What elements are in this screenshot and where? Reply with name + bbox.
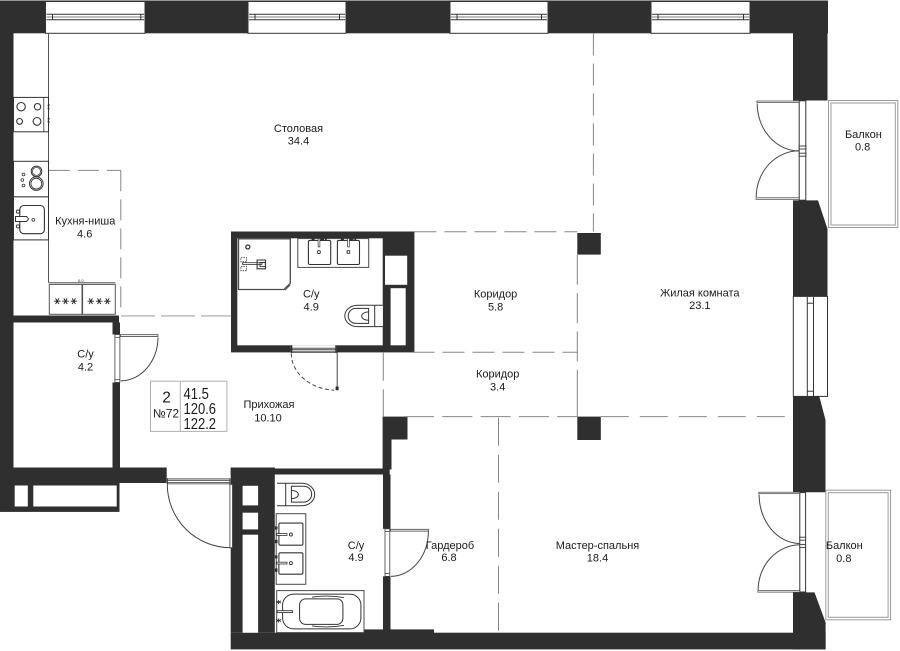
svg-text:Коридор: Коридор [476,369,519,381]
svg-text:Прихожая: Прихожая [244,399,295,411]
svg-text:С/у: С/у [303,289,320,301]
svg-text:6.8: 6.8 [441,552,456,564]
svg-text:34.4: 34.4 [288,136,309,148]
svg-text:122.2: 122.2 [184,416,217,433]
svg-text:С/у: С/у [77,349,94,361]
svg-text:Коридор: Коридор [474,289,517,301]
svg-text:4.9: 4.9 [348,552,363,564]
svg-text:5.8: 5.8 [488,301,503,313]
svg-text:Мастер-спальня: Мастер-спальня [556,540,640,552]
svg-text:Балкон: Балкон [845,129,882,141]
svg-text:10.10: 10.10 [254,412,282,424]
svg-text:18.4: 18.4 [587,552,608,564]
svg-text:№72: №72 [153,406,180,420]
svg-text:С/у: С/у [348,540,365,552]
svg-text:6.0: 6.0 [47,118,52,124]
svg-text:Балкон: Балкон [826,540,863,552]
svg-text:4.2: 4.2 [78,362,93,374]
svg-text:6.0: 6.0 [47,104,52,110]
svg-text:3.4: 3.4 [490,381,505,393]
svg-text:4.9: 4.9 [304,301,319,313]
svg-text:Кухня-ниша: Кухня-ниша [55,216,116,228]
svg-text:0.8: 0.8 [836,553,851,565]
svg-text:4.6: 4.6 [77,229,92,241]
svg-text:0.0: 0.0 [78,278,84,283]
svg-text:Столовая: Столовая [274,123,323,135]
svg-text:Жилая комната: Жилая комната [660,287,740,299]
svg-text:0.8: 0.8 [855,142,870,154]
svg-text:23.1: 23.1 [689,300,710,312]
svg-text:2: 2 [162,390,171,407]
svg-text:Гардероб: Гардероб [426,540,474,552]
